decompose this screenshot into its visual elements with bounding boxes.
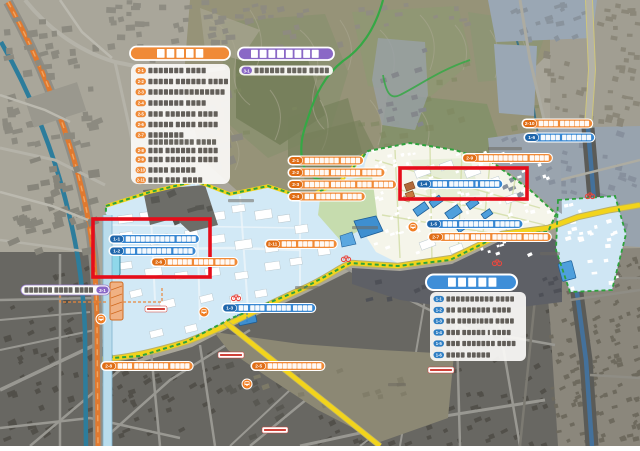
svg-text:1-5: 1-5 (430, 222, 437, 228)
svg-text:1-6: 1-6 (528, 135, 535, 141)
svg-text:2-10: 2-10 (137, 168, 146, 173)
svg-text:2-1: 2-1 (292, 158, 299, 164)
svg-text:1-5: 1-5 (436, 341, 443, 346)
svg-text:2-2: 2-2 (138, 79, 145, 84)
svg-text:1-2: 1-2 (113, 249, 120, 255)
svg-text:2-5: 2-5 (255, 364, 262, 370)
svg-text:2-3: 2-3 (138, 90, 145, 95)
svg-text:2-11: 2-11 (137, 178, 146, 183)
svg-text:1-1: 1-1 (436, 297, 443, 302)
svg-text:1-1: 1-1 (113, 237, 120, 243)
svg-text:2-2: 2-2 (292, 170, 299, 176)
svg-text:2-4: 2-4 (292, 194, 299, 200)
svg-text:2-9: 2-9 (466, 156, 473, 162)
svg-text:1-2: 1-2 (436, 308, 443, 313)
svg-text:2-6: 2-6 (138, 122, 145, 127)
svg-text:1-4: 1-4 (436, 330, 443, 335)
svg-text:2-8: 2-8 (138, 148, 145, 153)
svg-text:2-5: 2-5 (138, 112, 145, 117)
svg-text:1-6: 1-6 (436, 353, 443, 358)
svg-text:2-10: 2-10 (525, 121, 535, 127)
svg-text:2-4: 2-4 (138, 101, 145, 106)
svg-text:2-7: 2-7 (138, 133, 145, 138)
svg-text:2-11: 2-11 (268, 242, 278, 248)
svg-text:2-3: 2-3 (292, 182, 299, 188)
svg-text:3-1: 3-1 (244, 68, 251, 73)
svg-text:1-4: 1-4 (420, 182, 427, 188)
svg-text:2-7: 2-7 (432, 235, 439, 241)
svg-text:2-9: 2-9 (138, 157, 145, 162)
svg-text:3-1: 3-1 (99, 288, 106, 293)
svg-text:2-1: 2-1 (138, 68, 145, 73)
svg-text:2-8: 2-8 (105, 364, 112, 370)
svg-text:2-6: 2-6 (155, 260, 162, 266)
svg-text:1-3: 1-3 (436, 319, 443, 324)
svg-text:1-3: 1-3 (226, 306, 233, 312)
